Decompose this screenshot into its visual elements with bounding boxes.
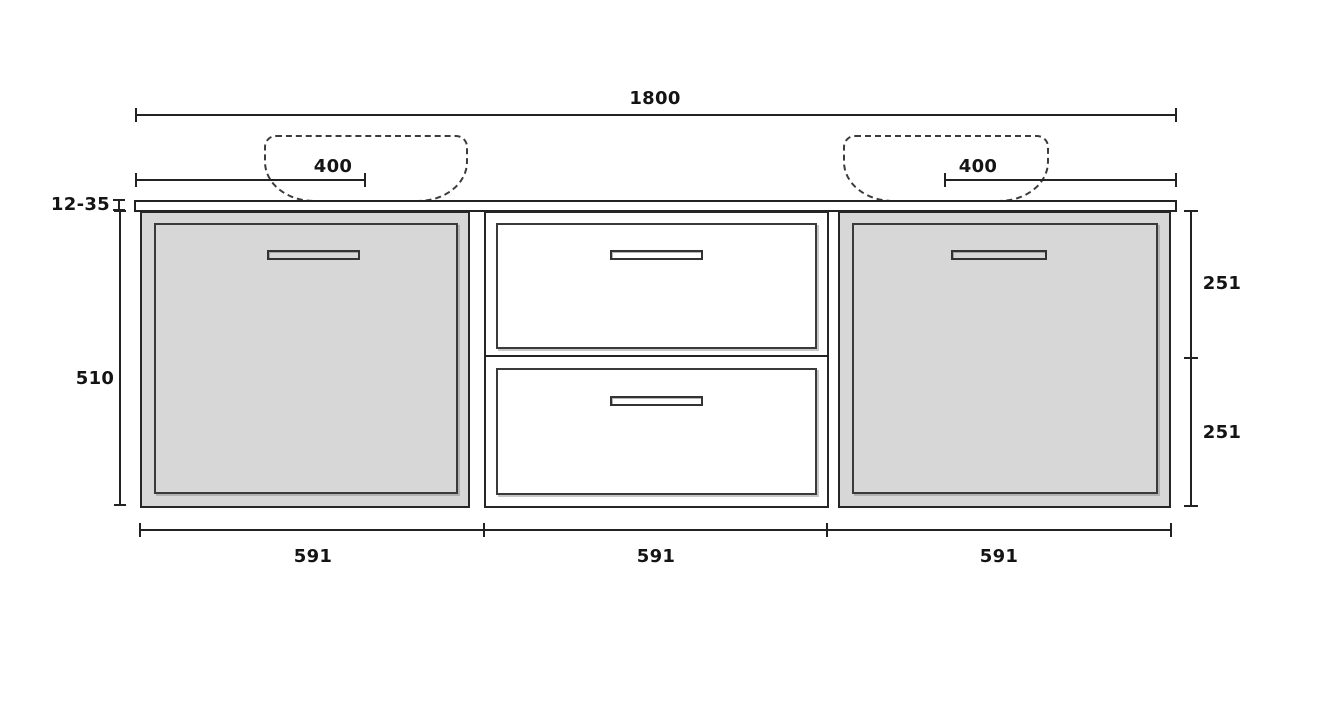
right-door-panel — [852, 223, 1158, 494]
dim-tick — [483, 523, 485, 537]
vanity-technical-drawing: 1800 400 400 12-35 510 251 251 — [0, 0, 1320, 710]
dim-tick — [114, 210, 126, 212]
top-drawer-panel — [496, 223, 817, 349]
section-widths-dim-line — [140, 529, 1171, 531]
dim-tick — [1184, 357, 1198, 359]
bottom-drawer-handle — [610, 396, 703, 406]
dim-tick — [1175, 108, 1177, 122]
left-sink-offset-dim-line — [136, 179, 366, 181]
dim-tick — [1184, 210, 1198, 212]
drawer-heights-dim-line — [1190, 211, 1192, 507]
bottom-drawer-panel — [496, 368, 817, 495]
dim-tick — [826, 523, 828, 537]
bottom-drawer-height-label: 251 — [1197, 424, 1247, 442]
dim-tick — [135, 173, 137, 187]
left-basin-outline — [264, 135, 468, 202]
dim-tick — [1170, 523, 1172, 537]
overall-width-dim-line — [136, 114, 1177, 116]
dim-tick — [364, 173, 366, 187]
right-section-width-label: 591 — [954, 548, 1044, 566]
top-drawer-height-label: 251 — [1197, 275, 1247, 293]
left-door-handle — [267, 250, 360, 260]
right-sink-offset-label: 400 — [948, 158, 1008, 176]
left-sink-offset-label: 400 — [303, 158, 363, 176]
dim-tick — [944, 173, 946, 187]
dim-tick — [139, 523, 141, 537]
drawer-divider-line — [484, 355, 829, 357]
right-basin-outline — [843, 135, 1049, 202]
dim-tick — [113, 199, 125, 201]
top-drawer-handle — [610, 250, 703, 260]
cabinet-height-dim-line — [119, 211, 121, 506]
dim-tick — [1184, 505, 1198, 507]
dim-tick — [1175, 173, 1177, 187]
dim-tick — [114, 504, 126, 506]
left-door-panel — [154, 223, 458, 494]
right-door-handle — [951, 250, 1047, 260]
right-sink-offset-dim-line — [945, 179, 1177, 181]
countertop-thickness-label: 12-35 — [50, 196, 110, 214]
left-section-width-label: 591 — [268, 548, 358, 566]
overall-width-label: 1800 — [600, 90, 710, 108]
dim-tick — [135, 108, 137, 122]
cabinet-height-label: 510 — [65, 370, 125, 388]
middle-section-width-label: 591 — [611, 548, 701, 566]
